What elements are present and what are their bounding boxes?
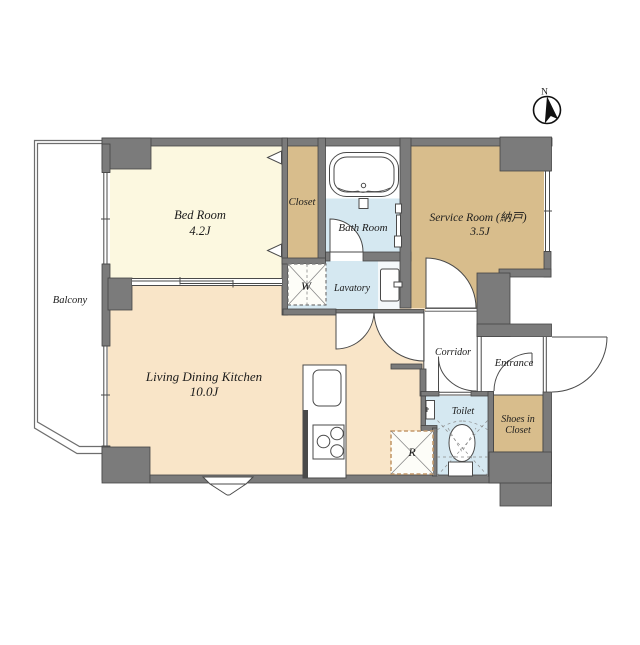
svg-text:Corridor: Corridor [435,347,471,358]
svg-text:R: R [407,445,416,459]
svg-text:Toilet: Toilet [452,406,475,417]
svg-text:Entrance: Entrance [494,358,534,369]
svg-text:Bath Room: Bath Room [338,222,387,234]
svg-text:Bed Room: Bed Room [174,208,226,222]
svg-text:10.0J: 10.0J [190,384,220,399]
svg-text:Closet: Closet [505,425,531,436]
svg-text:Balcony: Balcony [53,295,88,306]
svg-text:Service Room (納戸): Service Room (納戸) [429,211,526,224]
svg-text:W: W [301,279,312,293]
svg-text:Living Dining Kitchen: Living Dining Kitchen [145,369,262,384]
svg-text:N: N [541,88,548,98]
svg-text:4.2J: 4.2J [189,224,212,238]
svg-text:3.5J: 3.5J [469,226,490,238]
svg-text:Lavatory: Lavatory [333,283,371,294]
svg-text:Shoes in: Shoes in [501,414,535,425]
svg-text:Closet: Closet [289,197,317,208]
